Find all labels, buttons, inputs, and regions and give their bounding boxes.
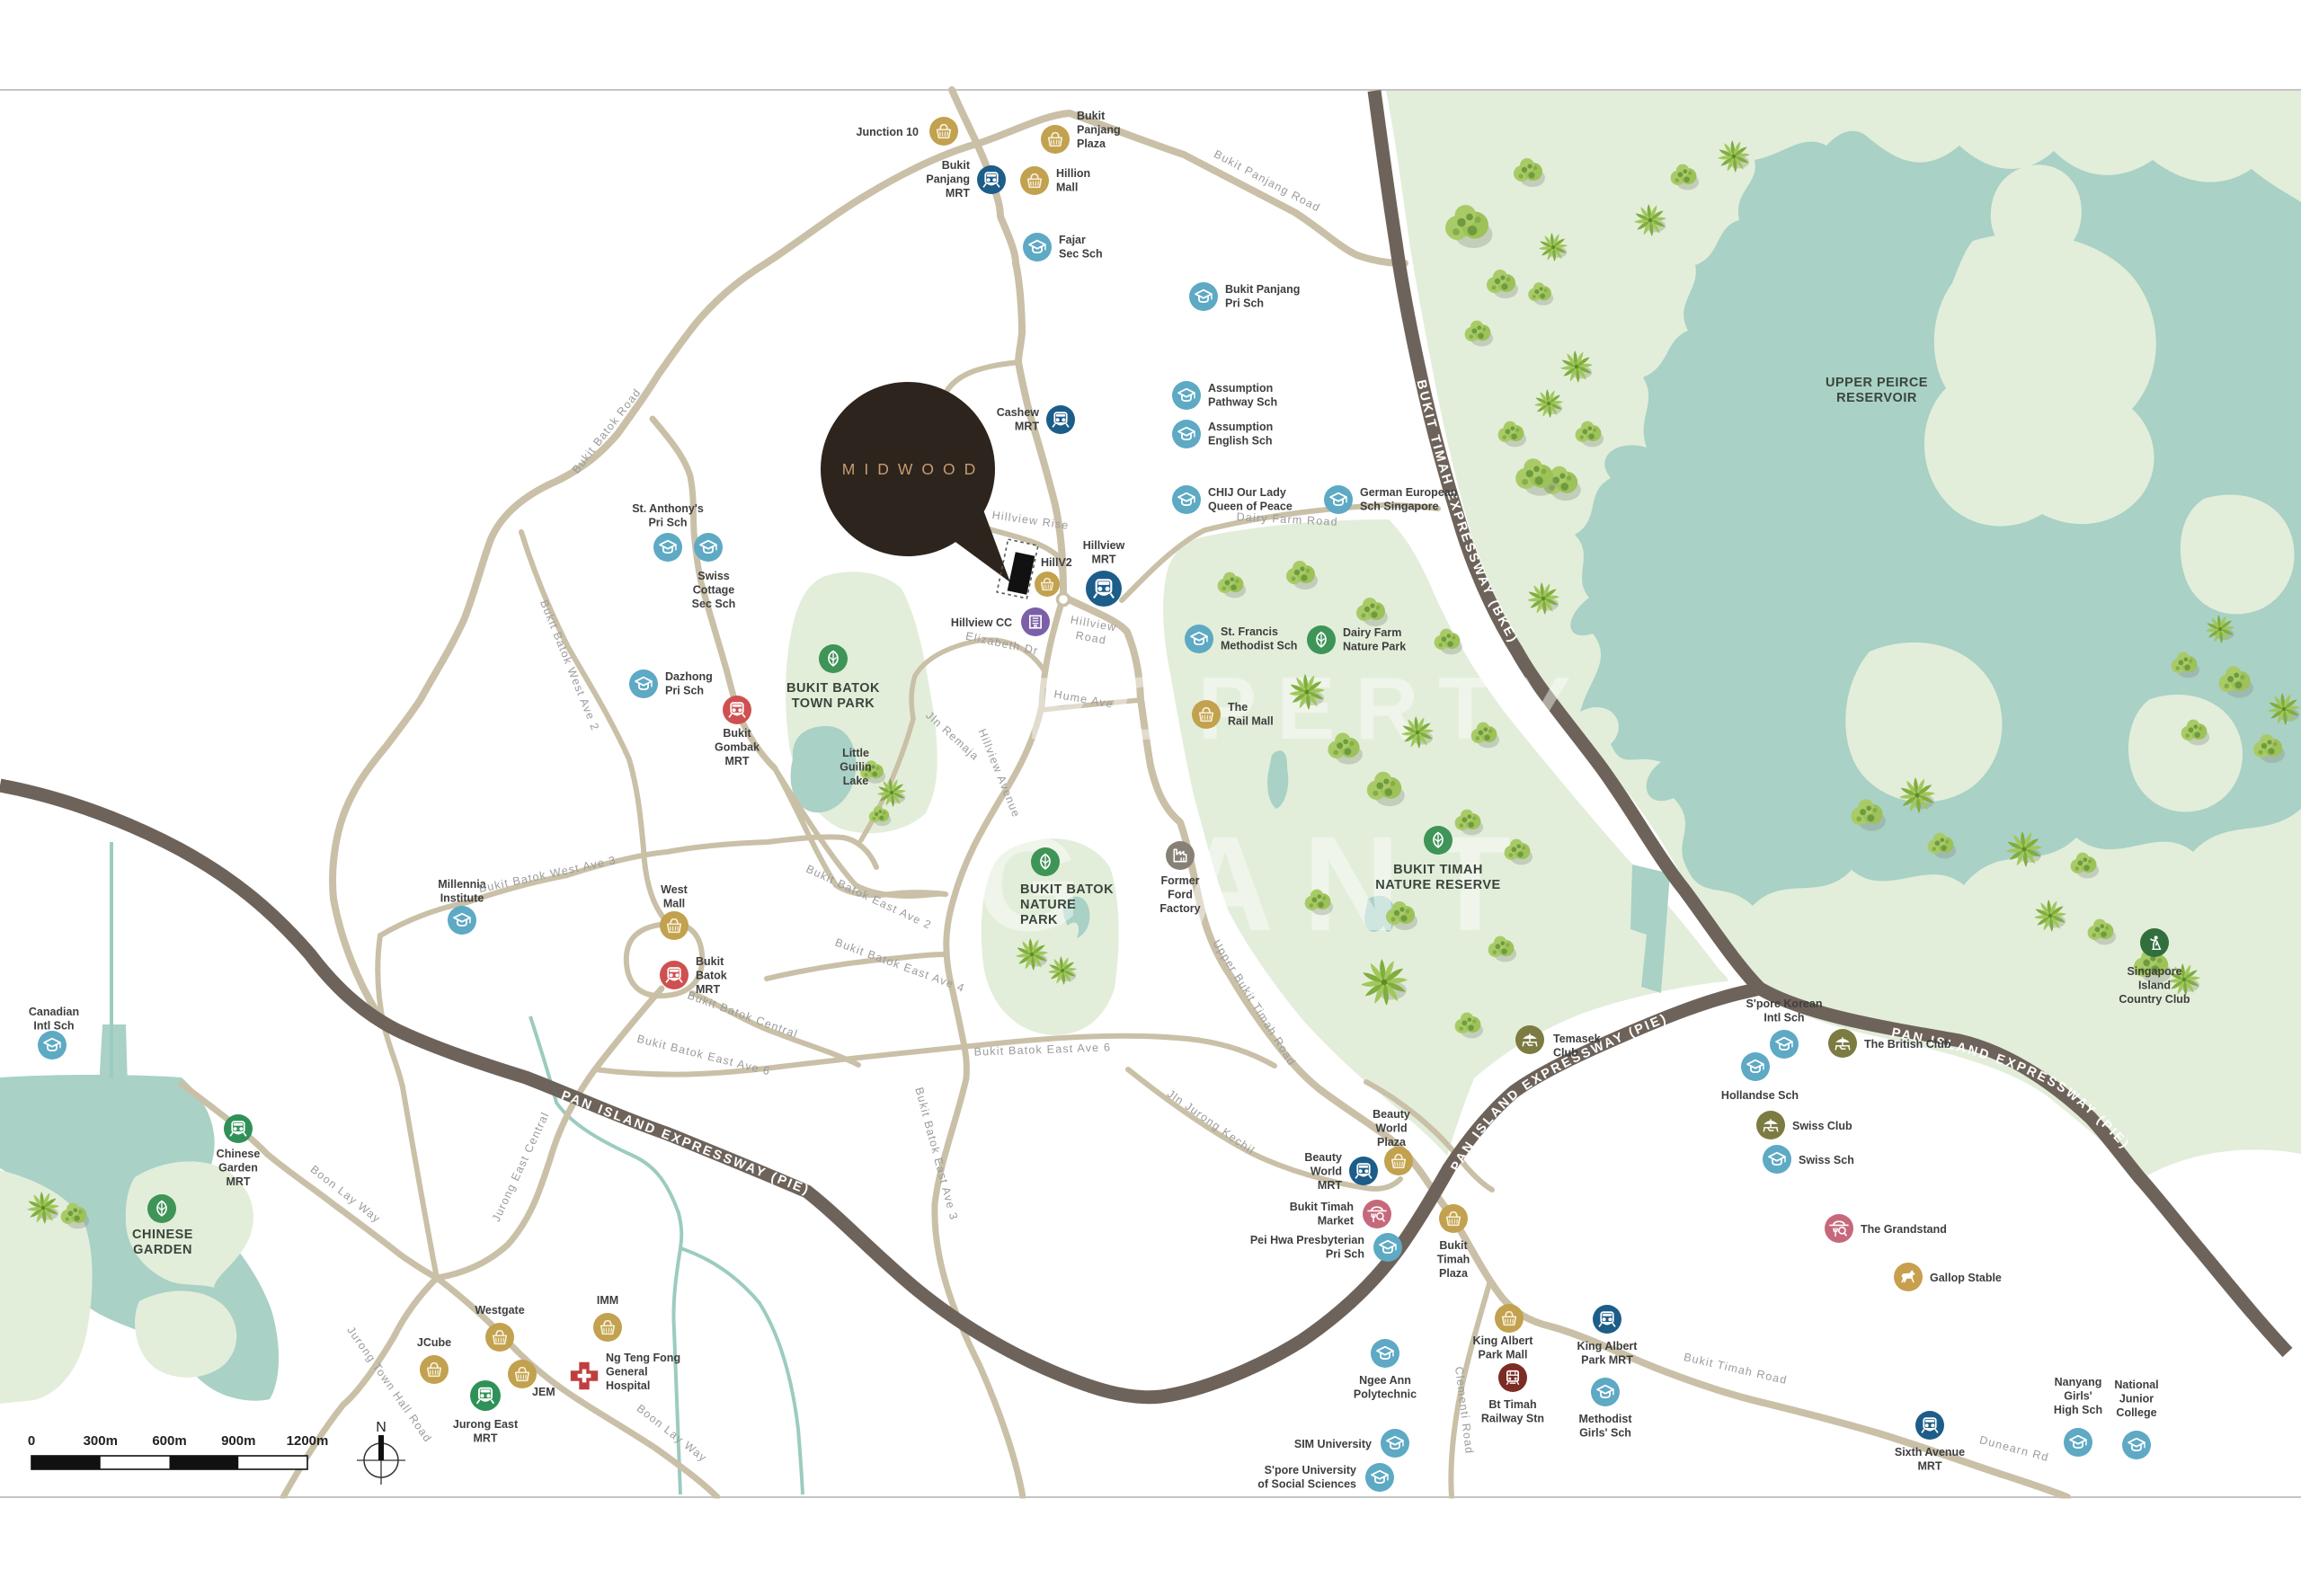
svg-text:600m: 600m <box>152 1433 186 1449</box>
svg-text:NationalJuniorCollege: NationalJuniorCollege <box>2114 1379 2158 1419</box>
svg-text:Westgate: Westgate <box>475 1304 524 1317</box>
svg-text:CanadianIntl Sch: CanadianIntl Sch <box>29 1006 79 1033</box>
svg-text:Swiss Club: Swiss Club <box>1792 1120 1852 1132</box>
svg-text:JCube: JCube <box>417 1336 451 1349</box>
svg-text:N: N <box>376 1420 386 1435</box>
svg-text:1200m: 1200m <box>287 1433 329 1449</box>
svg-text:MIDWOOD: MIDWOOD <box>842 460 984 478</box>
svg-text:King AlbertPark Mall: King AlbertPark Mall <box>1473 1334 1534 1361</box>
svg-text:Hollandse Sch: Hollandse Sch <box>1721 1089 1799 1102</box>
svg-text:300m: 300m <box>84 1433 118 1449</box>
svg-text:The British Club: The British Club <box>1864 1038 1951 1051</box>
svg-text:Junction 10: Junction 10 <box>857 126 920 138</box>
svg-text:King AlbertPark MRT: King AlbertPark MRT <box>1577 1340 1639 1367</box>
svg-text:SIM University: SIM University <box>1294 1438 1372 1450</box>
svg-text:BUKIT BATOKTOWN PARK: BUKIT BATOKTOWN PARK <box>786 681 880 711</box>
svg-text:LittleGuilinLake: LittleGuilinLake <box>840 747 871 787</box>
svg-text:The Grandstand: The Grandstand <box>1861 1223 1947 1236</box>
svg-text:WestMall: WestMall <box>661 883 688 910</box>
svg-text:IMM: IMM <box>597 1294 618 1307</box>
svg-text:Gallop Stable: Gallop Stable <box>1930 1272 2002 1284</box>
svg-text:900m: 900m <box>221 1433 255 1449</box>
svg-text:AssumptionEnglish Sch: AssumptionEnglish Sch <box>1208 421 1273 448</box>
svg-text:CHINESEGARDEN: CHINESEGARDEN <box>132 1228 193 1257</box>
svg-text:BUKIT TIMAHNATURE RESERVE: BUKIT TIMAHNATURE RESERVE <box>1375 863 1500 892</box>
svg-text:CHIJ Our LadyQueen of Peace: CHIJ Our LadyQueen of Peace <box>1208 486 1293 513</box>
svg-text:AssumptionPathway Sch: AssumptionPathway Sch <box>1208 382 1277 409</box>
svg-text:MethodistGirls' Sch: MethodistGirls' Sch <box>1578 1413 1632 1440</box>
svg-text:UPPER PEIRCERESERVOIR: UPPER PEIRCERESERVOIR <box>1826 376 1928 405</box>
svg-text:Ngee AnnPolytechnic: Ngee AnnPolytechnic <box>1354 1374 1417 1401</box>
svg-text:Hillview CC: Hillview CC <box>951 616 1012 629</box>
svg-text:0: 0 <box>28 1433 35 1449</box>
svg-text:Swiss Sch: Swiss Sch <box>1799 1154 1854 1166</box>
svg-text:Dairy FarmNature Park: Dairy FarmNature Park <box>1343 626 1406 653</box>
svg-text:JEM: JEM <box>532 1386 555 1398</box>
svg-text:Bt TimahRailway Stn: Bt TimahRailway Stn <box>1481 1398 1544 1425</box>
svg-text:BeautyWorldPlaza: BeautyWorldPlaza <box>1373 1108 1410 1148</box>
svg-text:BukitTimahPlaza: BukitTimahPlaza <box>1437 1239 1470 1280</box>
svg-text:SwissCottageSec Sch: SwissCottageSec Sch <box>692 570 736 610</box>
svg-text:HillV2: HillV2 <box>1041 556 1072 569</box>
svg-text:S'pore Universityof Social Sci: S'pore Universityof Social Sciences <box>1257 1464 1356 1491</box>
